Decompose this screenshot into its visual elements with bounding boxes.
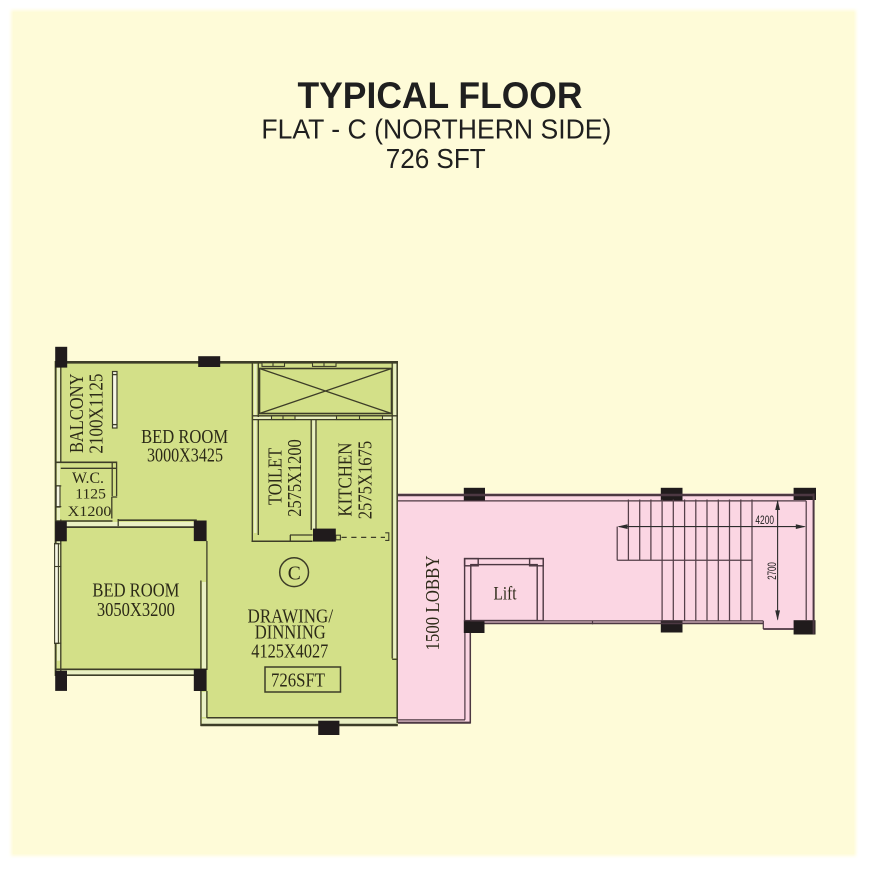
svg-text:1125: 1125 xyxy=(75,486,106,502)
svg-text:DINNING: DINNING xyxy=(255,622,326,643)
svg-text:KITCHEN: KITCHEN xyxy=(336,443,357,517)
svg-text:3000X3425: 3000X3425 xyxy=(147,446,223,467)
svg-text:BED ROOM: BED ROOM xyxy=(141,427,228,448)
svg-text:X1200: X1200 xyxy=(68,504,112,520)
svg-text:2575X1200: 2575X1200 xyxy=(285,439,306,517)
svg-text:1500 LOBBY: 1500 LOBBY xyxy=(422,555,444,650)
svg-text:2575X1675: 2575X1675 xyxy=(356,441,377,520)
svg-text:FLAT - C (NORTHERN SIDE): FLAT - C (NORTHERN SIDE) xyxy=(261,113,611,144)
svg-text:2700: 2700 xyxy=(765,562,779,580)
svg-text:W.C.: W.C. xyxy=(72,470,104,487)
svg-text:Lift: Lift xyxy=(494,584,518,605)
svg-text:TYPICAL FLOOR: TYPICAL FLOOR xyxy=(298,75,583,116)
svg-text:BED ROOM: BED ROOM xyxy=(92,581,179,602)
svg-text:C: C xyxy=(288,564,301,585)
svg-text:BALCONY: BALCONY xyxy=(67,374,88,454)
svg-text:TOILET: TOILET xyxy=(266,448,287,505)
svg-text:726SFT: 726SFT xyxy=(271,670,325,691)
svg-text:726 SFT: 726 SFT xyxy=(386,143,486,174)
svg-text:3050X3200: 3050X3200 xyxy=(97,600,175,621)
svg-text:4125X4027: 4125X4027 xyxy=(251,642,328,663)
svg-text:4200: 4200 xyxy=(755,513,774,527)
svg-text:2100X1125: 2100X1125 xyxy=(87,374,108,454)
